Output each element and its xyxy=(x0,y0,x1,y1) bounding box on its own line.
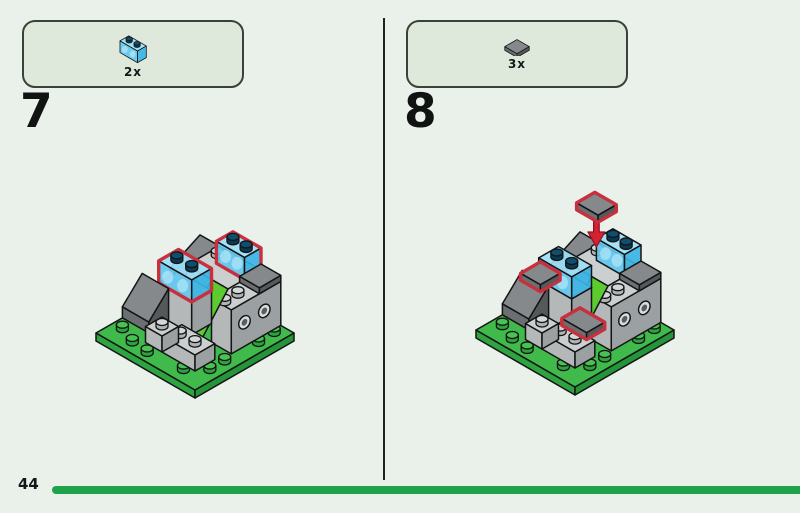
part-count-8: 3x xyxy=(508,57,526,71)
step8-illustration xyxy=(471,187,679,397)
instruction-page: 2x 7 3x 8 44 xyxy=(0,0,800,513)
dark-gray-tile-icon xyxy=(503,38,531,56)
step-number-8: 8 xyxy=(404,86,437,138)
step7-illustration xyxy=(91,226,299,401)
parts-callout-7: 2x xyxy=(22,20,244,88)
trans-blue-brick-icon xyxy=(118,30,148,64)
page-number: 44 xyxy=(18,475,39,493)
part-count-7: 2x xyxy=(124,65,142,79)
parts-callout-8: 3x xyxy=(406,20,628,88)
progress-bar xyxy=(52,486,800,494)
panel-divider xyxy=(383,18,385,480)
step-number-7: 7 xyxy=(20,86,53,138)
